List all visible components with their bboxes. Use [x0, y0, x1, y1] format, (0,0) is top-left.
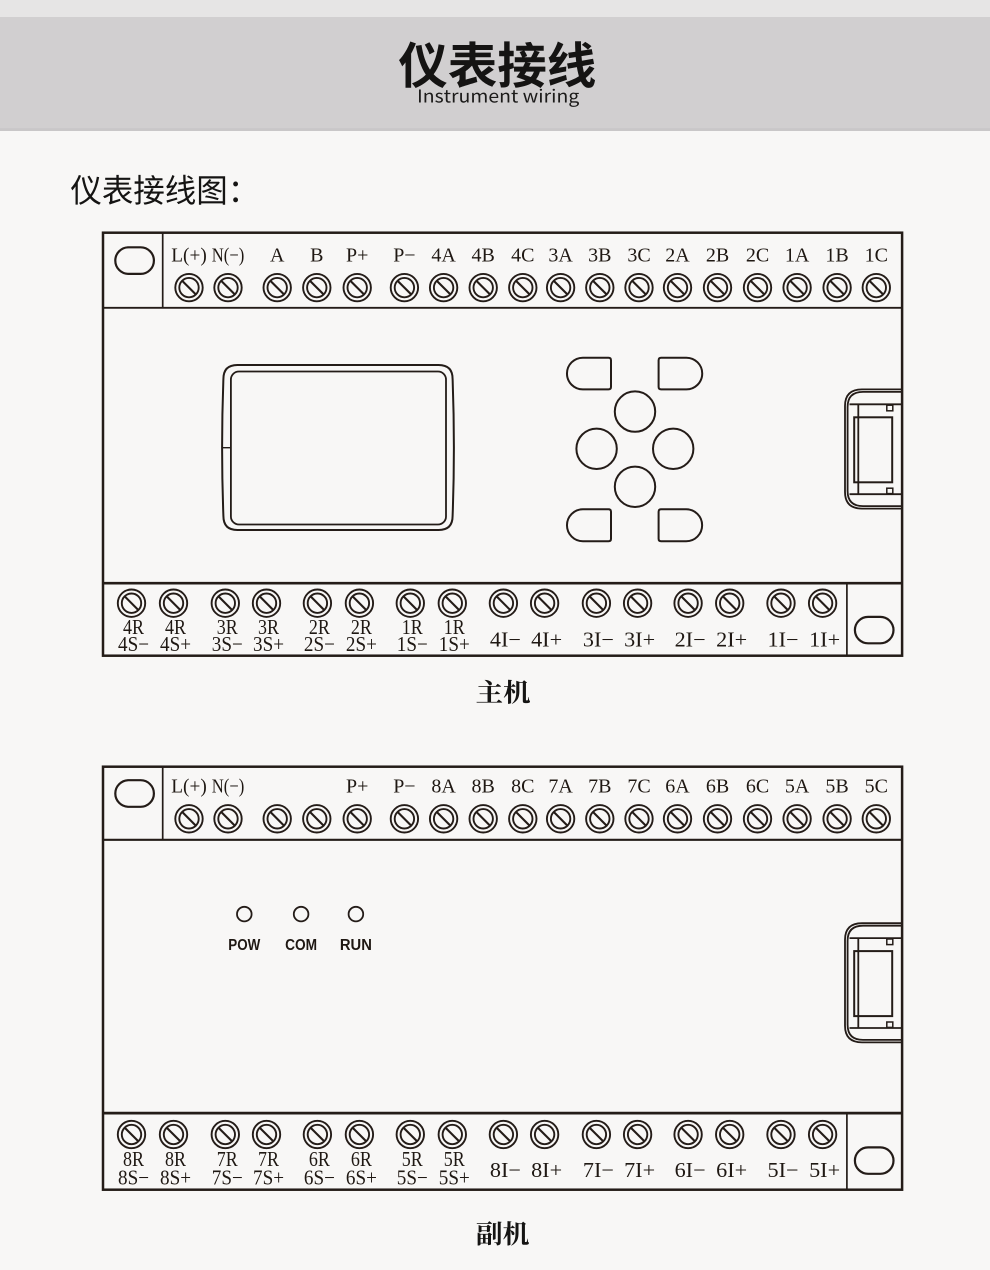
svg-text:4S+: 4S+: [160, 632, 191, 656]
svg-text:8B: 8B: [472, 776, 495, 798]
svg-text:8I+: 8I+: [531, 1158, 562, 1182]
svg-text:1I−: 1I−: [768, 628, 799, 652]
svg-text:2B: 2B: [706, 245, 729, 267]
svg-text:B: B: [310, 245, 323, 267]
svg-text:5I+: 5I+: [809, 1158, 840, 1182]
svg-text:7I+: 7I+: [624, 1158, 655, 1182]
svg-text:4I+: 4I+: [531, 628, 562, 652]
svg-text:5S+: 5S+: [439, 1166, 470, 1190]
svg-text:8A: 8A: [431, 776, 456, 798]
svg-text:5A: 5A: [785, 776, 810, 798]
svg-text:6S−: 6S−: [304, 1166, 335, 1190]
svg-text:1S−: 1S−: [397, 632, 428, 656]
svg-text:A: A: [270, 245, 285, 267]
svg-text:6A: 6A: [665, 776, 690, 798]
svg-text:P+: P+: [346, 776, 368, 798]
svg-text:3B: 3B: [588, 245, 611, 267]
svg-text:8S−: 8S−: [118, 1166, 149, 1190]
svg-text:1C: 1C: [865, 245, 888, 267]
svg-text:3A: 3A: [548, 245, 573, 267]
svg-text:7S+: 7S+: [253, 1166, 284, 1190]
svg-text:7A: 7A: [548, 776, 573, 798]
svg-text:4A: 4A: [431, 245, 456, 267]
svg-text:2I+: 2I+: [716, 628, 747, 652]
svg-text:2A: 2A: [665, 245, 690, 267]
svg-text:6I+: 6I+: [716, 1158, 747, 1182]
svg-text:3S−: 3S−: [212, 632, 243, 656]
svg-text:6C: 6C: [746, 776, 769, 798]
svg-text:1I+: 1I+: [809, 628, 840, 652]
svg-text:2I−: 2I−: [675, 628, 706, 652]
svg-text:6B: 6B: [706, 776, 729, 798]
svg-text:7C: 7C: [627, 776, 650, 798]
svg-text:COM: COM: [285, 937, 317, 954]
svg-text:RUN: RUN: [340, 937, 372, 954]
svg-text:3C: 3C: [627, 245, 650, 267]
svg-text:P−: P−: [393, 245, 415, 267]
svg-text:1A: 1A: [785, 245, 810, 267]
svg-text:2S+: 2S+: [346, 632, 377, 656]
svg-text:5C: 5C: [865, 776, 888, 798]
svg-text:P+: P+: [346, 245, 368, 267]
svg-text:1B: 1B: [825, 245, 848, 267]
svg-text:4I−: 4I−: [490, 628, 521, 652]
svg-text:4B: 4B: [472, 245, 495, 267]
svg-text:6S+: 6S+: [346, 1166, 377, 1190]
svg-text:2C: 2C: [746, 245, 769, 267]
svg-text:4C: 4C: [511, 245, 534, 267]
svg-text:L(+): L(+): [171, 776, 207, 798]
svg-text:3I+: 3I+: [624, 628, 655, 652]
svg-text:1S+: 1S+: [439, 632, 470, 656]
svg-text:4S−: 4S−: [118, 632, 149, 656]
svg-text:6I−: 6I−: [675, 1158, 706, 1182]
svg-text:5I−: 5I−: [768, 1158, 799, 1182]
svg-text:2S−: 2S−: [304, 632, 335, 656]
svg-text:P−: P−: [393, 776, 415, 798]
svg-text:3S+: 3S+: [253, 632, 284, 656]
svg-text:8I−: 8I−: [490, 1158, 521, 1182]
svg-text:7I−: 7I−: [583, 1158, 614, 1182]
svg-text:N(−): N(−): [212, 776, 245, 798]
svg-text:7B: 7B: [588, 776, 611, 798]
svg-text:7S−: 7S−: [212, 1166, 243, 1190]
svg-text:5S−: 5S−: [397, 1166, 428, 1190]
svg-text:POW: POW: [228, 937, 260, 954]
svg-text:8C: 8C: [511, 776, 534, 798]
svg-text:3I−: 3I−: [583, 628, 614, 652]
svg-text:N(−): N(−): [212, 245, 245, 267]
svg-text:5B: 5B: [825, 776, 848, 798]
svg-text:8S+: 8S+: [160, 1166, 191, 1190]
svg-text:L(+): L(+): [171, 245, 207, 267]
